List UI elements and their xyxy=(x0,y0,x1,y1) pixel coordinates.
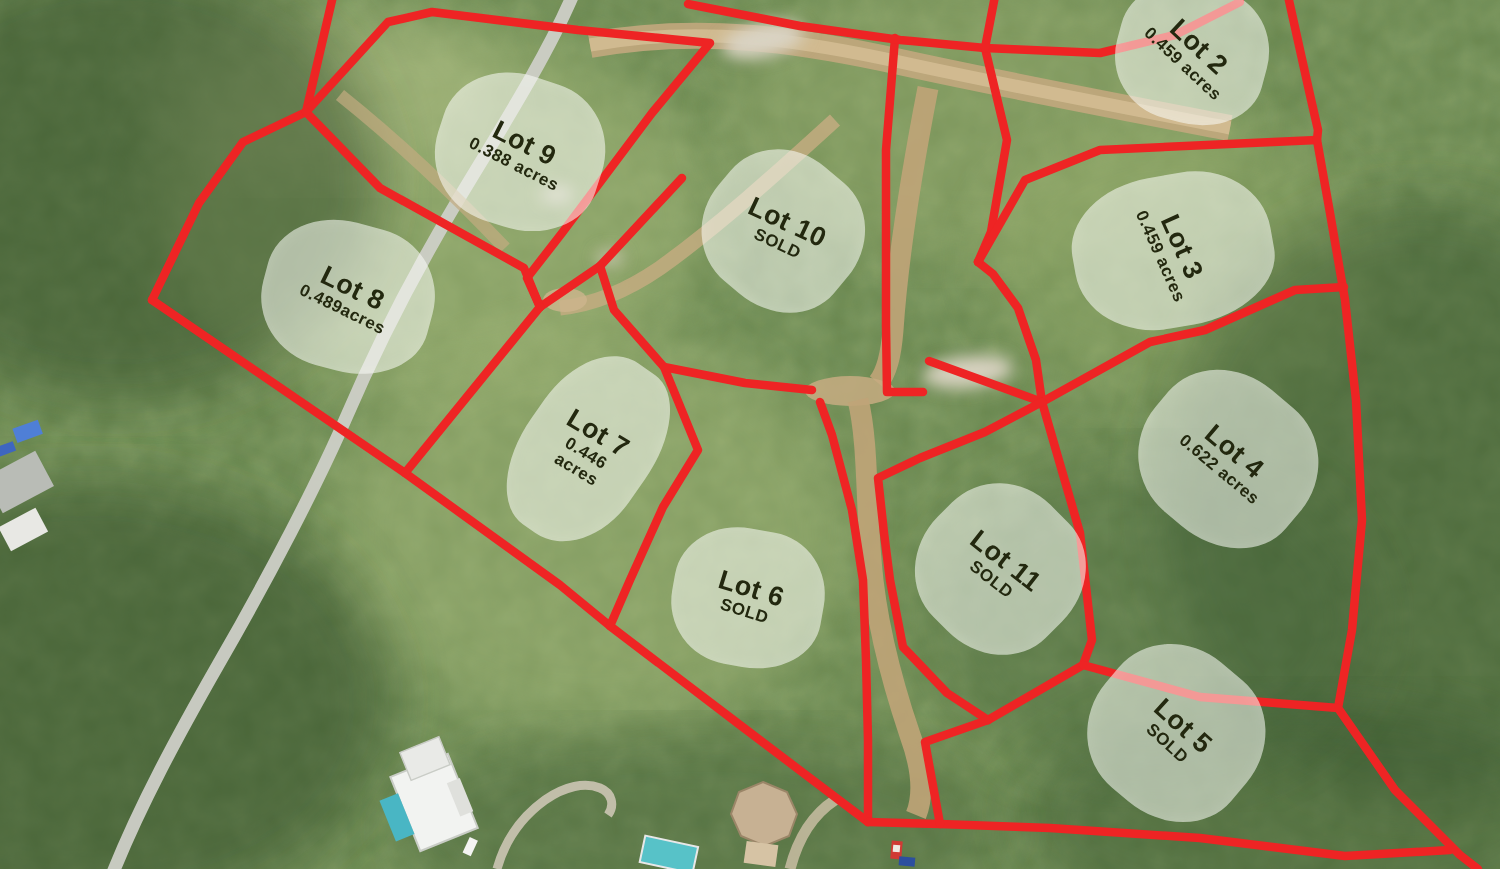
lot-label: Lot 8 0.489acres xyxy=(296,255,400,338)
lot-label: Lot 2 0.459 acres xyxy=(1140,3,1244,105)
aerial-lot-map: Lot 2 0.459 acres Lot 3 0.459 acres Lot … xyxy=(0,0,1500,869)
lot-label: Lot 11 SOLD xyxy=(953,525,1046,612)
lot-label: Lot 6 SOLD xyxy=(709,565,787,630)
lot-label: Lot 3 0.459 acres xyxy=(1131,196,1214,305)
lot-label: Lot 5 SOLD xyxy=(1135,693,1217,773)
lot-label: Lot 4 0.622 acres xyxy=(1175,409,1281,509)
lot-label: Lot 9 0.388 acres xyxy=(465,109,574,196)
lot-label: Lot 10 SOLD xyxy=(736,192,831,270)
lot-label: Lot 7 0.446 acres xyxy=(542,404,633,495)
